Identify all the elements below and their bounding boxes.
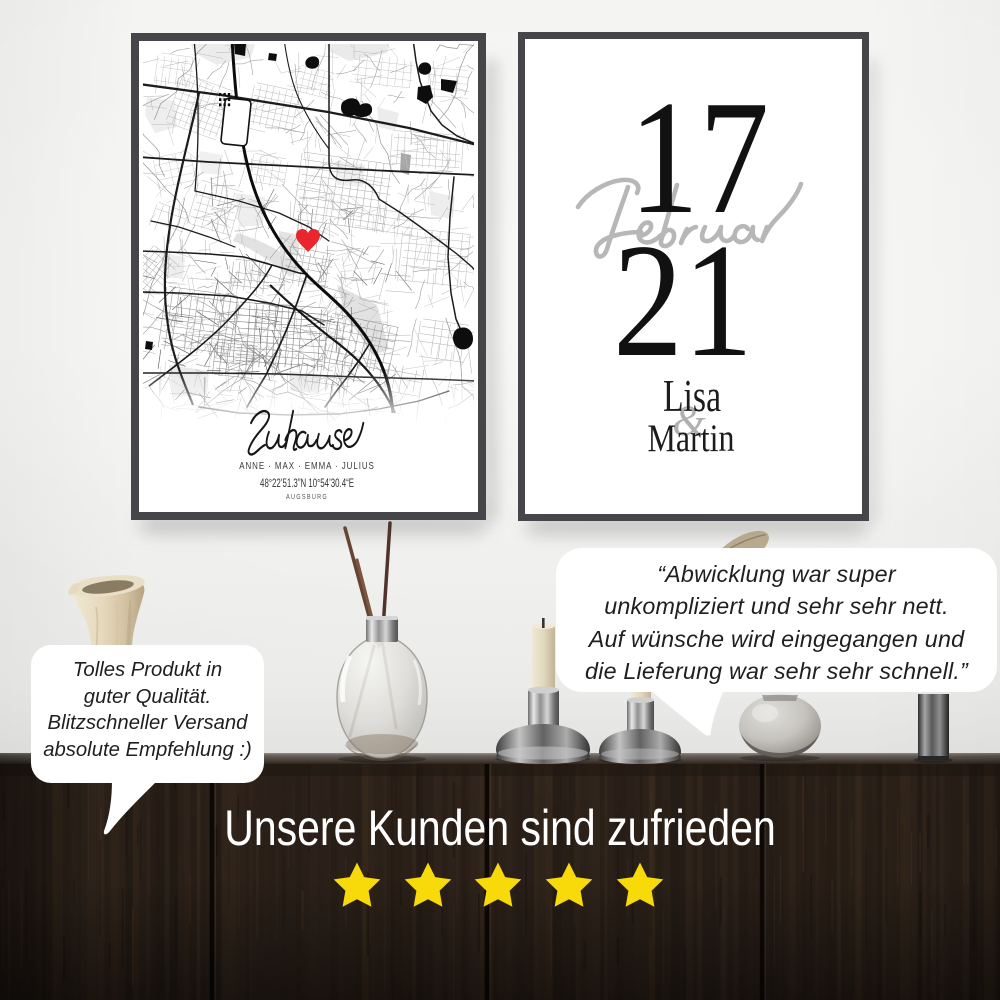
svg-text:Lisa: Lisa — [663, 371, 721, 421]
svg-text:ANNE · MAX · EMMA · JULIUS: ANNE · MAX · EMMA · JULIUS — [239, 460, 374, 471]
svg-text:21: 21 — [613, 210, 753, 390]
svg-text:AUGSBURG: AUGSBURG — [286, 493, 328, 501]
svg-text:Martin: Martin — [647, 416, 734, 460]
svg-text:48°22’51.3”N 10°54’30.4“E: 48°22’51.3”N 10°54’30.4“E — [260, 478, 354, 491]
